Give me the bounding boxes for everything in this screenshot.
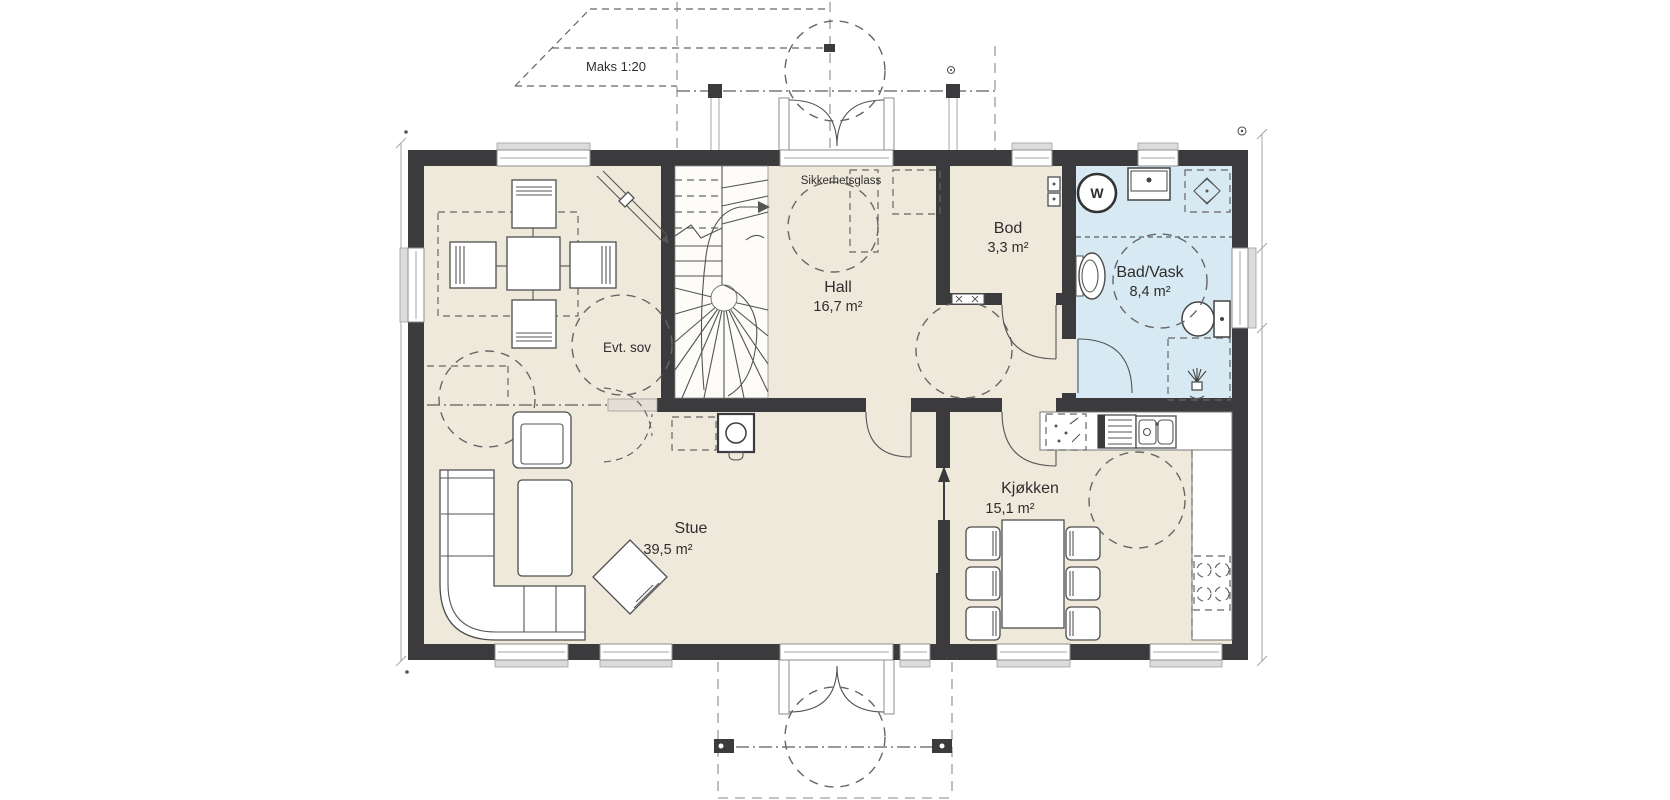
floor-plan-drawing: Maks 1:20	[0, 0, 1670, 800]
room-label-evt-sov: Evt. sov	[603, 340, 651, 355]
entry-door-leaf-right	[884, 98, 894, 156]
room-label-hall: Hall	[824, 279, 852, 296]
terrace-door-leaf-left	[779, 660, 789, 714]
axis-tick	[824, 44, 835, 52]
porch-post-right	[946, 84, 960, 98]
terrace-post-left	[714, 739, 734, 753]
staircase	[675, 166, 770, 398]
washing-machine-icon: W	[1078, 174, 1116, 212]
kitchen-counter-right	[1192, 450, 1232, 640]
stove-icon	[1098, 415, 1136, 448]
kitchen-sink-icon	[1136, 416, 1176, 448]
washing-machine-label: W	[1090, 185, 1104, 201]
electrical-panel-icon	[1048, 177, 1060, 206]
chaise-lounge	[518, 480, 572, 576]
armchair	[513, 412, 571, 468]
wall-vent-icon	[952, 294, 984, 304]
chair	[512, 180, 556, 228]
chair	[450, 242, 496, 288]
room-area-hall: 16,7 m²	[813, 299, 862, 315]
room-label-kjokken: Kjøkken	[1001, 480, 1059, 497]
room-area-stue: 39,5 m²	[643, 542, 692, 558]
room-label-bad-vask: Bad/Vask	[1116, 264, 1184, 281]
room-label-bod: Bod	[994, 220, 1022, 237]
outside-top: Maks 1:20	[515, 2, 995, 156]
dining-chairs-right	[1066, 527, 1100, 640]
square-table	[507, 237, 560, 290]
chair	[512, 300, 556, 348]
porch-post-left	[708, 84, 722, 98]
safety-glass-label: Sikkerhetsglass	[801, 175, 882, 187]
room-area-bad-vask: 8,4 m²	[1129, 284, 1170, 300]
understair-opening	[608, 399, 657, 411]
terrace-door-leaf-right	[884, 660, 894, 714]
room-area-kjokken: 15,1 m²	[985, 501, 1034, 517]
ramp-label: Maks 1:20	[586, 59, 646, 74]
washbasin-icon	[1076, 253, 1105, 299]
dining-table	[1002, 520, 1064, 628]
turning-circle-entry	[785, 21, 885, 121]
turning-circle-terrace	[785, 687, 885, 787]
toilet-icon	[1182, 301, 1230, 337]
outside-bottom	[714, 660, 952, 798]
laundry-sink-icon	[1128, 168, 1170, 200]
floor-plan-page: Maks 1:20	[0, 0, 1670, 800]
chair	[570, 242, 616, 288]
dining-chairs-left	[966, 527, 1000, 640]
entry-door-leaf-left	[779, 98, 789, 156]
room-area-bod: 3,3 m²	[987, 240, 1028, 256]
room-label-stue: Stue	[675, 520, 708, 537]
